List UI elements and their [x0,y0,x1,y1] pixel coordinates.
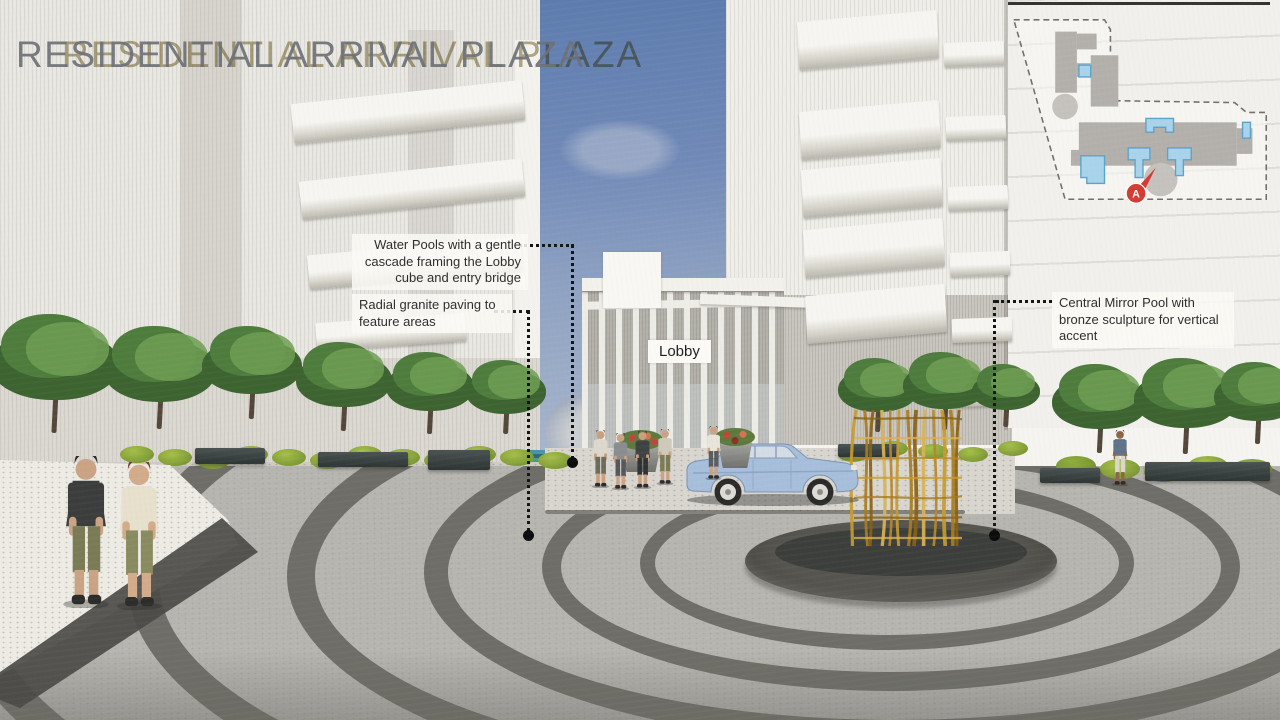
tree-canopy [26,322,109,376]
stone-bench [1040,468,1100,483]
page-title: RESIDENTIAL ARRIVAL PLAZA [16,34,585,76]
annotation-water-pools: Water Pools with a gentle cascade framin… [352,234,528,290]
leader-line [996,300,1052,303]
sculpture-lattice [848,404,968,552]
annotation-radial-paving: Radial granite paving to feature areas [352,294,512,333]
leader-line [571,244,574,460]
stone-bench [195,448,265,464]
shrub [998,441,1028,456]
tree-canopy [230,332,295,375]
person [700,426,727,485]
balcony-slab [950,251,1011,277]
tree [104,326,216,432]
tree-canopy [1078,370,1140,411]
leader-dot [567,457,578,468]
tree [386,352,474,436]
tree [0,314,119,436]
balcony-slab [946,115,1007,141]
leader-dot [989,530,1000,541]
tree [466,360,546,436]
svg-text:A: A [1132,188,1140,200]
annotation-mirror-pool: Central Mirror Pool with bronze sculptur… [1052,292,1234,348]
person [1106,430,1134,486]
person [102,462,176,615]
person [102,462,176,610]
tree [296,342,392,433]
car-wheel [807,479,834,506]
tree [972,364,1040,429]
tree-canopy [322,348,384,389]
leader-line [527,310,530,532]
stone-bench [318,452,408,467]
tree-canopy [135,333,208,381]
lobby-label: Lobby [648,340,711,363]
bronze-sculpture [848,404,968,552]
leader-line [993,300,996,532]
tree [202,326,302,421]
balcony-slab [948,185,1009,211]
white-block [603,252,661,308]
person [651,429,679,490]
rendering-canvas: RESIDENTIAL ARRIVAL PLAZA RESIDENTIAL AR… [0,0,1280,720]
balcony-slab [952,317,1013,343]
person [651,429,679,485]
tree-canopy [410,357,467,394]
person [1106,430,1134,491]
tree [1214,362,1280,446]
tree-canopy [991,368,1035,397]
leader-dot [523,530,534,541]
stone-bench [1145,462,1270,481]
key-plan: A [1005,4,1277,216]
balcony-slab [944,41,1005,67]
cloud [560,120,680,180]
stone-bench [428,450,490,470]
tree-canopy [488,365,540,399]
person [700,426,727,480]
